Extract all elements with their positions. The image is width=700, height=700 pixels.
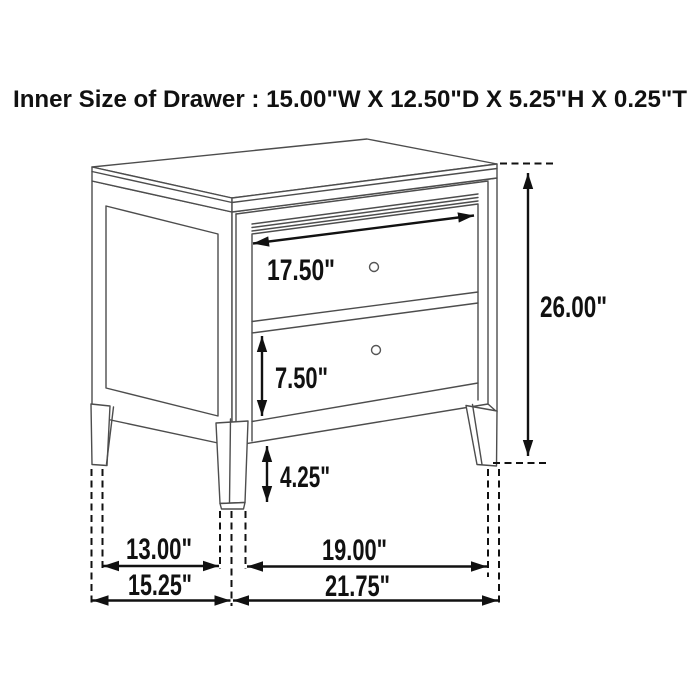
front-left-leg [216, 421, 248, 504]
drawer-width-label: 17.50" [267, 254, 335, 287]
front-left-leg-foot [220, 503, 245, 510]
drawer-top-knob [370, 263, 379, 272]
diagram-title: Inner Size of Drawer : 15.00"W X 12.50"D… [13, 86, 687, 113]
side-panel [92, 181, 232, 446]
overall-depth-label: 15.25" [128, 569, 192, 602]
overall-width-label: 21.75" [325, 570, 390, 603]
bottom-drawer-height-label: 7.50" [275, 362, 328, 395]
drawer-bottom-knob [372, 346, 381, 355]
side-leg-spacing-label: 13.00" [126, 533, 192, 566]
leg-height-label: 4.25" [280, 461, 330, 494]
product-dimension-diagram: Inner Size of Drawer : 15.00"W X 12.50"D… [0, 0, 700, 700]
overall-height-label: 26.00" [540, 291, 607, 324]
front-left-leg-corner-line [230, 419, 231, 503]
front-leg-spacing-label: 19.00" [322, 534, 387, 567]
